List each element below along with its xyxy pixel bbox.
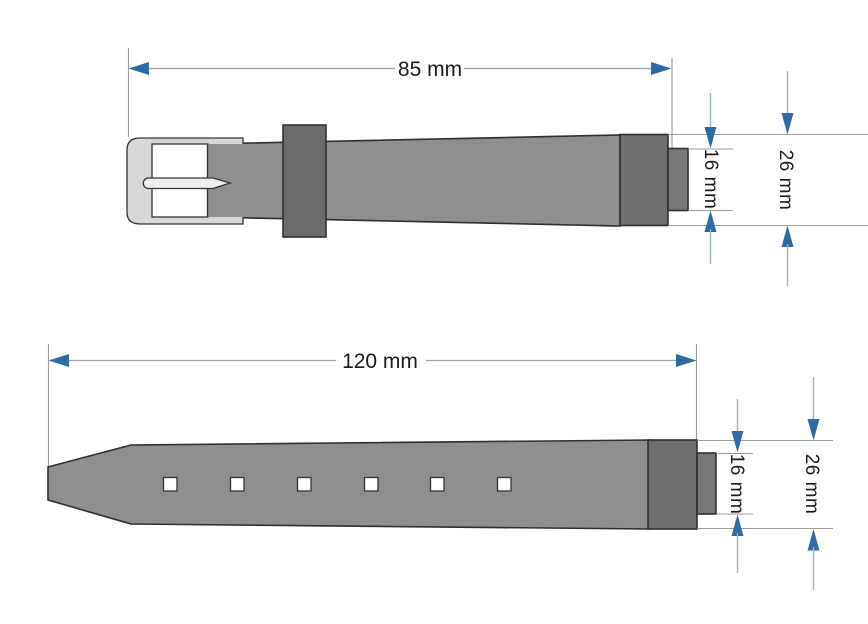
top-strap-length-label: 85 mm: [398, 58, 462, 81]
arrow-down-icon: [732, 431, 744, 453]
strap-hole: [298, 478, 312, 492]
top-strap-end-width-label: 16 mm: [700, 149, 721, 210]
top-strap-spring-bar-nub: [668, 149, 688, 211]
strap-hole: [231, 478, 245, 492]
bottom-strap-spring-bar-nub: [697, 453, 716, 514]
arrow-down-icon: [808, 419, 820, 441]
top-strap-end-cap: [620, 135, 668, 226]
bottom-strap-length-label: 120 mm: [342, 350, 418, 373]
top-strap-drawing: 85 mm 16 mm 26 mm: [127, 48, 868, 286]
bottom-strap-end-cap: [648, 440, 697, 529]
top-strap-body: [207, 135, 620, 226]
arrow-down-icon: [705, 127, 717, 149]
buckle-prong: [143, 178, 230, 189]
strap-dimension-diagram: 85 mm 16 mm 26 mm: [0, 0, 868, 624]
arrow-right-icon: [676, 354, 697, 367]
strap-hole: [431, 478, 445, 492]
arrow-up-icon: [732, 515, 744, 537]
diagram-canvas: 85 mm 16 mm 26 mm: [0, 0, 868, 624]
arrow-up-icon: [705, 211, 717, 233]
strap-hole: [498, 478, 512, 492]
top-strap-full-width-label: 26 mm: [775, 150, 796, 211]
arrow-right-icon: [651, 62, 672, 75]
arrow-left-icon: [49, 354, 70, 367]
strap-hole: [164, 478, 178, 492]
strap-hole: [365, 478, 379, 492]
bottom-strap-full-width-label: 26 mm: [801, 454, 822, 515]
arrow-down-icon: [782, 113, 794, 135]
bottom-strap-body: [48, 440, 650, 529]
bottom-strap-end-width-label: 16 mm: [726, 454, 747, 515]
strap-keeper: [283, 125, 326, 237]
arrow-left-icon: [129, 62, 150, 75]
bottom-strap-drawing: 120 mm 16 mm 26 mm: [48, 344, 833, 590]
arrow-up-icon: [782, 226, 794, 248]
